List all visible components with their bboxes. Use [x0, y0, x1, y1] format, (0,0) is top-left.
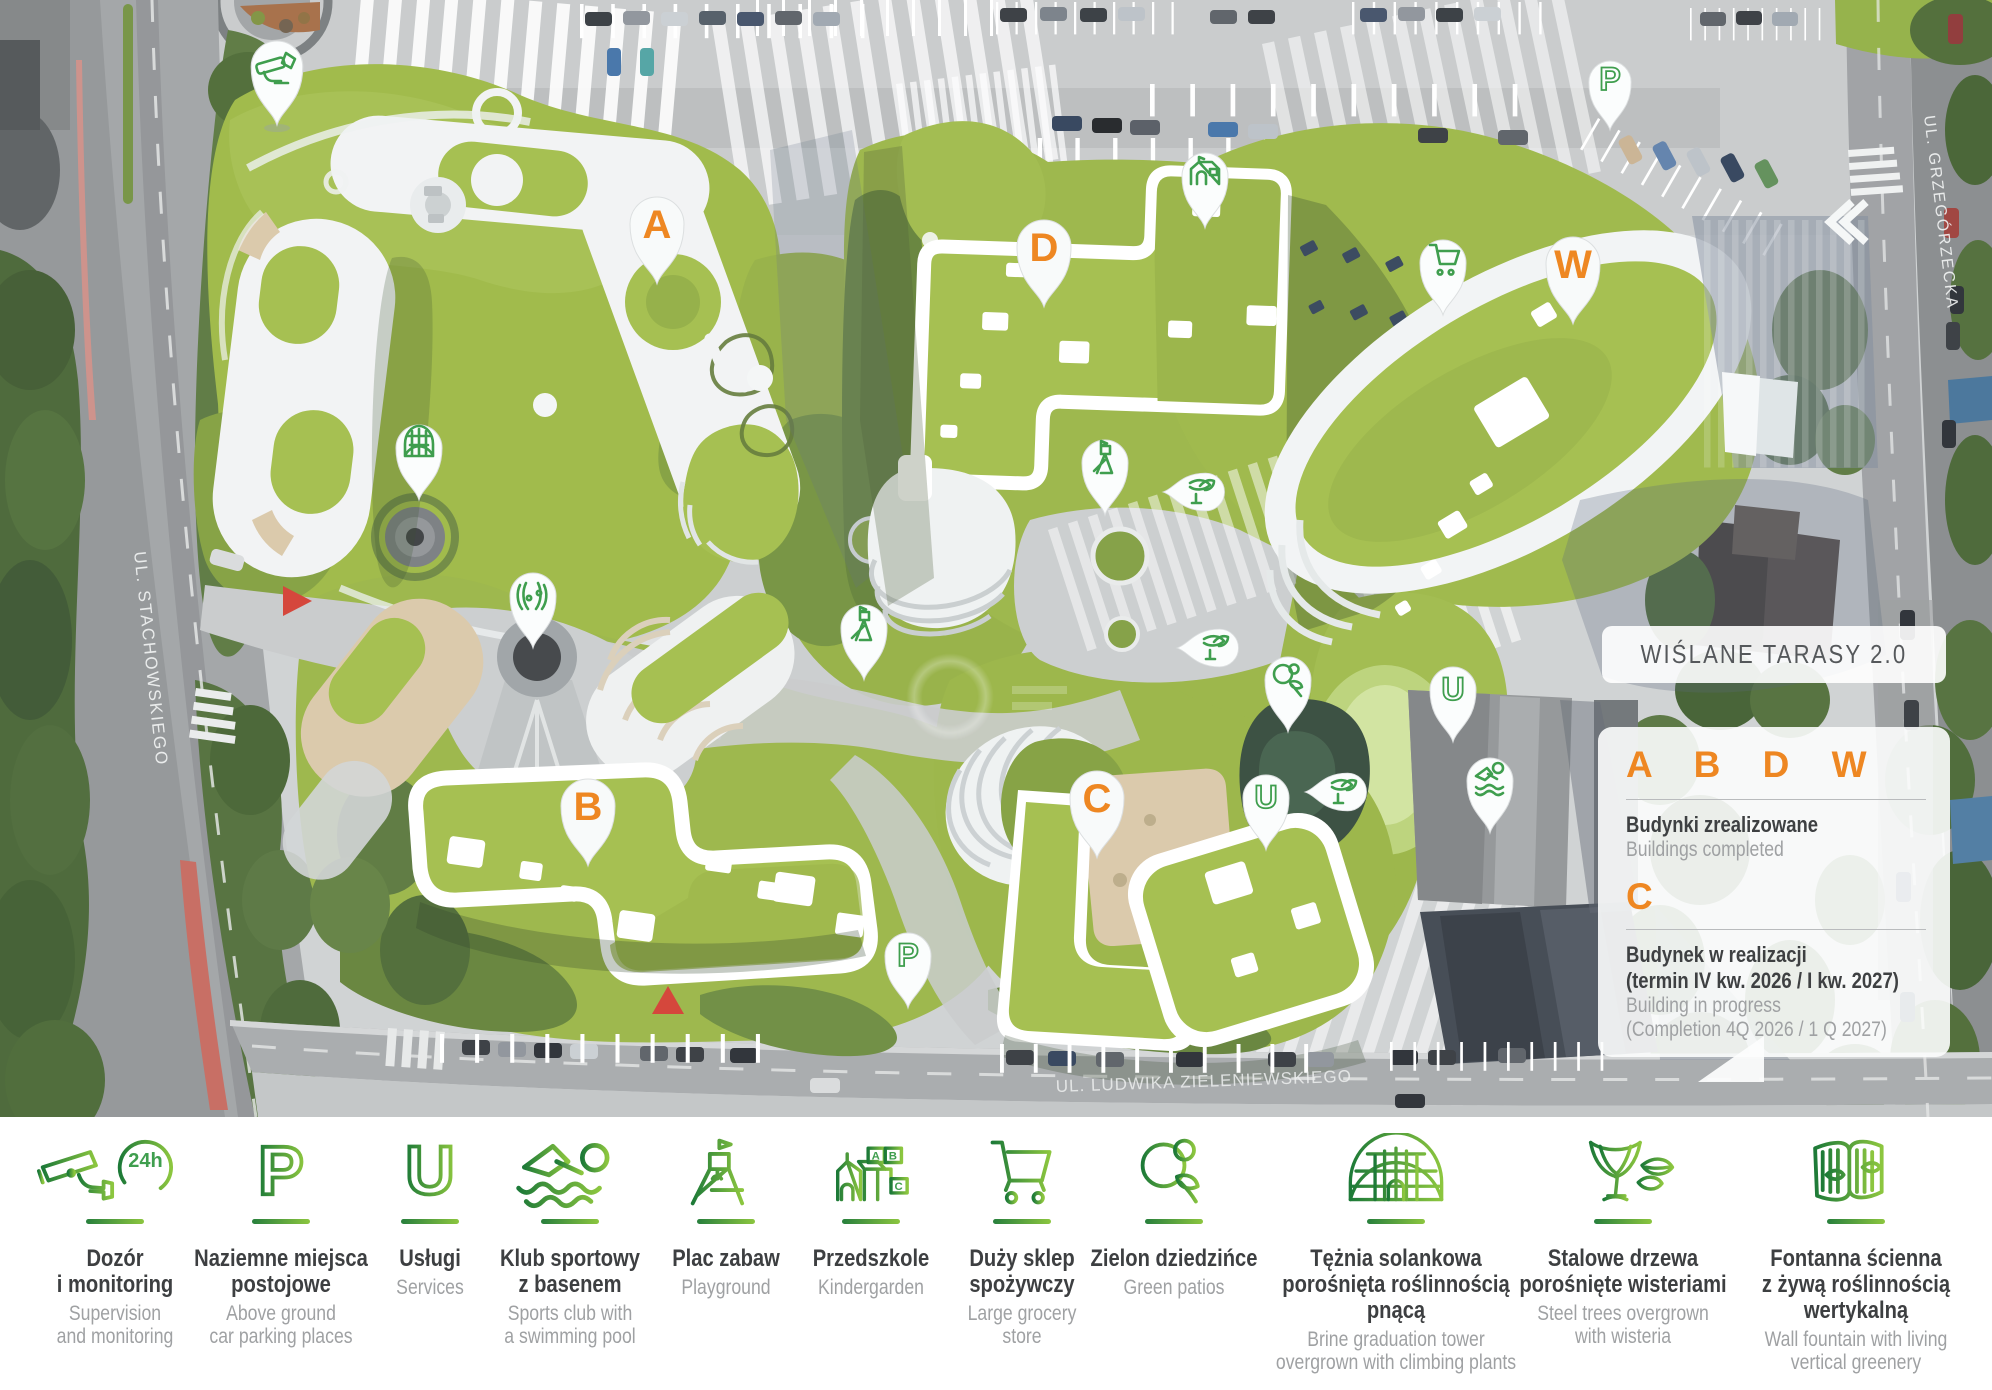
svg-text:A: A: [872, 1151, 880, 1163]
svg-text:C: C: [1083, 777, 1112, 821]
svg-text:U: U: [1254, 779, 1277, 815]
svg-text:A: A: [643, 203, 672, 247]
svg-text:B: B: [574, 785, 603, 829]
svg-text:U: U: [1441, 671, 1464, 707]
svg-text:W: W: [1554, 243, 1592, 287]
svg-text:C: C: [894, 1181, 902, 1193]
svg-text:D: D: [1030, 226, 1059, 270]
svg-text:P: P: [1599, 61, 1620, 97]
svg-text:P: P: [258, 1133, 304, 1209]
svg-text:P: P: [897, 937, 918, 973]
svg-text:B: B: [889, 1151, 897, 1163]
